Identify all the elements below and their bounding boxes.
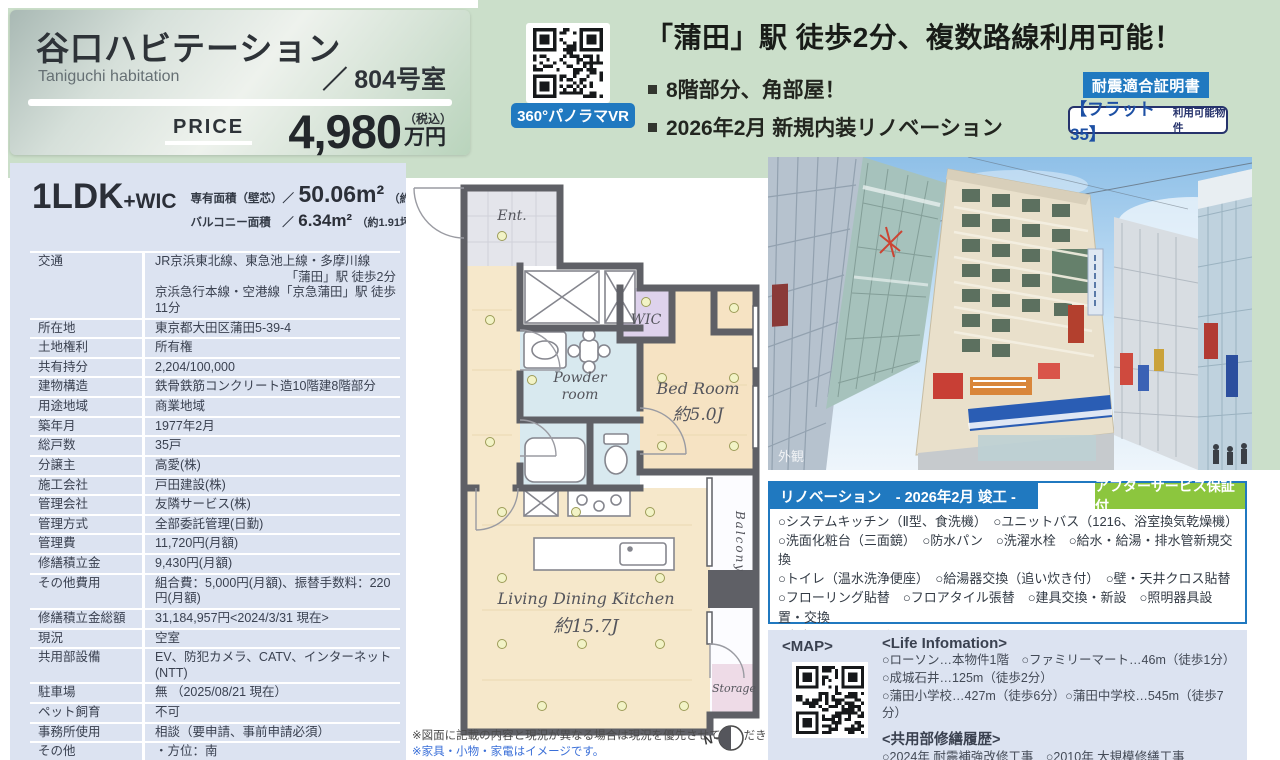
table-row: 建物構造鉄骨鉄筋コンクリート造10階建8階部分 — [30, 378, 400, 398]
label-entrance: Ent. — [496, 208, 526, 224]
table-row-value: 東京都大田区蒲田5-39-4 — [145, 320, 400, 338]
property-header: 谷口ハビテーション Taniguchi habitation ／ 804号室 P… — [10, 10, 470, 155]
table-row-label: ペット飼育 — [30, 704, 145, 722]
main-building — [916, 169, 1114, 470]
top-margin — [0, 0, 478, 8]
price-label: PRICE — [165, 116, 252, 145]
table-row: 土地権利所有権 — [30, 339, 400, 359]
table-row-label: 管理方式 — [30, 516, 145, 534]
layout-type: 1LDK — [32, 177, 123, 216]
table-row-value: 11,720円(月額) — [145, 535, 400, 553]
renovation-title: リノベーション - 2026年2月 竣工 - — [770, 483, 1038, 509]
table-row-value: 35戸 — [145, 437, 400, 455]
bullet-square-icon — [648, 85, 657, 94]
area-tsubo: （約15.14坪） — [389, 193, 406, 205]
svg-text:N: N — [703, 732, 714, 747]
list-item: ○蒲田小学校…427m（徒歩6分）○蒲田中学校…545m（徒歩7分） — [882, 688, 1242, 724]
table-row-label: その他 — [30, 743, 145, 760]
table-row-value: EV、防犯カメラ、CATV、インターネット(NTT) — [145, 649, 400, 682]
map-qr-code — [792, 662, 868, 738]
price-unit: 万円 — [404, 127, 446, 149]
table-row: 用途地域商業地域 — [30, 398, 400, 418]
vr-qr-code — [526, 23, 610, 103]
table-row: 現況空室 — [30, 630, 400, 650]
layout-suffix: +WIC — [123, 190, 176, 213]
table-row-value: JR京浜東北線、東急池上線・多摩川線「蒲田」駅 徒歩2分京浜急行本線・空港線「京… — [145, 253, 400, 318]
table-row: その他・方位：南・通学区域：蒲田小学校、蒲田中学校・公共水道、公共下水、都市ガス… — [30, 743, 400, 760]
table-row-value: 組合費：5,000円(月額)、振替手数料：220円(月額) — [145, 575, 400, 608]
table-row-label: 施工会社 — [30, 477, 145, 495]
table-row-label: 総戸数 — [30, 437, 145, 455]
flat35-badge-sub: 利用可能物件 — [1173, 105, 1226, 135]
table-row: 共用部設備EV、防犯カメラ、CATV、インターネット(NTT) — [30, 649, 400, 684]
vr-label: 360°パノラマVR — [511, 103, 635, 128]
label-wic: WIC — [631, 312, 662, 328]
table-row-label: その他費用 — [30, 575, 145, 608]
area-label: 専有面積（壁芯）／ — [191, 193, 295, 205]
label-bedroom: Bed Room — [655, 379, 739, 398]
bullet-square-icon — [648, 123, 657, 132]
photo-caption: 外観 — [778, 449, 804, 464]
right-green-strip — [1250, 0, 1280, 470]
renovation-items: ○システムキッチン（Ⅱ型、食洗機） ○ユニットバス（1216、浴室換気乾燥機）○… — [770, 509, 1245, 649]
table-row: その他費用組合費：5,000円(月額)、振替手数料：220円(月額) — [30, 575, 400, 610]
table-row-label: 築年月 — [30, 418, 145, 436]
map-label: <MAP> — [782, 638, 833, 655]
table-row-value: ・方位：南・通学区域：蒲田小学校、蒲田中学校・公共水道、公共下水、都市ガス、電力… — [145, 743, 400, 760]
list-item: ○ローソン…本物件1階 ○ファミリーマート…46m（徒歩1分） — [882, 652, 1242, 670]
table-row-value: 所有権 — [145, 339, 400, 357]
exterior-photo: 外観 — [768, 157, 1252, 470]
table-row-label: 用途地域 — [30, 398, 145, 416]
qr-code-icon — [796, 666, 864, 734]
table-row-value: 全部委託管理(日勤) — [145, 516, 400, 534]
life-information: <Life Infomation> ○ローソン…本物件1階 ○ファミリーマート…… — [882, 635, 1242, 760]
table-row-label: 現況 — [30, 630, 145, 648]
table-row: 分譲主高愛(株) — [30, 457, 400, 477]
table-row: 管理会社友隣サービス(株) — [30, 496, 400, 516]
list-item: ○2024年 耐震補強改修工事 ○2010年 大規模修繕工事 — [882, 749, 1242, 760]
table-row-label: 修繕積立金 — [30, 555, 145, 573]
property-title: 谷口ハビテーション — [36, 22, 341, 70]
table-row-label: 管理会社 — [30, 496, 145, 514]
table-row: 施工会社戸田建設(株) — [30, 477, 400, 497]
label-storage: Storage — [712, 682, 756, 695]
table-row-label: 共有持分 — [30, 359, 145, 377]
table-row-value: 2,204/100,000 — [145, 359, 400, 377]
table-row-value: 鉄骨鉄筋コンクリート造10階建8階部分 — [145, 378, 400, 396]
property-detail-panel: 1LDK+WIC 専有面積（壁芯）／ 50.06m² （約15.14坪） バルコ… — [10, 163, 406, 760]
after-service-tag: アフターサービス保証付 — [1095, 483, 1245, 509]
list-item: ○成城石井…125m（徒歩2分） — [882, 670, 1242, 688]
table-row: ペット飼育不可 — [30, 704, 400, 724]
label-bedroom-size: 約5.0J — [673, 405, 725, 425]
list-item: ○フローリング貼替 ○フロアタイル張替 ○建具交換・新設 ○照明器具設置・交換 — [778, 588, 1237, 626]
area-value: 50.06m² — [298, 181, 384, 207]
room-number: ／ 804号室 — [322, 60, 446, 96]
list-item: ○システムキッチン（Ⅱ型、食洗機） ○ユニットバス（1216、浴室換気乾燥機） — [778, 512, 1237, 531]
table-row-label: 管理費 — [30, 535, 145, 553]
life-information-title: <Life Infomation> — [882, 635, 1242, 652]
pedestrians — [1213, 443, 1247, 465]
table-row: 交通JR京浜東北線、東急池上線・多摩川線「蒲田」駅 徒歩2分京浜急行本線・空港線… — [30, 251, 400, 320]
layout-summary: 1LDK+WIC 専有面積（壁芯）／ 50.06m² （約15.14坪） バルコ… — [10, 163, 406, 231]
property-title-romaji: Taniguchi habitation — [38, 68, 179, 86]
label-powder-2: room — [562, 387, 599, 403]
price: 4,980 （税込） 万円 — [288, 108, 452, 155]
table-row-label: 建物構造 — [30, 378, 145, 396]
flat35-badge: 【フラット35】 利用可能物件 — [1068, 106, 1228, 134]
feature-bullet-2-text: 2026年2月 新規内装リノベーション — [666, 112, 1003, 142]
table-row-label: 修繕積立金総額 — [30, 610, 145, 628]
table-row-value: 不可 — [145, 704, 400, 722]
balcony-value: 6.34m² — [298, 211, 352, 230]
balcony-label: バルコニー面積 ／ — [191, 217, 294, 229]
repair-history-title: <共用部修繕履歴> — [882, 728, 1242, 749]
table-row-value: 戸田建設(株) — [145, 477, 400, 495]
table-row-label: 駐車場 — [30, 684, 145, 702]
info-table: 交通JR京浜東北線、東急池上線・多摩川線「蒲田」駅 徒歩2分京浜急行本線・空港線… — [30, 251, 400, 760]
table-row: 総戸数35戸 — [30, 437, 400, 457]
table-row-value: 空室 — [145, 630, 400, 648]
table-row: 共有持分2,204/100,000 — [30, 359, 400, 379]
table-row: 事務所使用相談（要申請、事前申請必須） — [30, 724, 400, 744]
price-tax-note: （税込） — [404, 110, 452, 127]
table-row-label: 交通 — [30, 253, 145, 318]
list-item: ○トイレ（温水洗浄便座） ○給湯器交換（追い炊き付） ○壁・天井クロス貼替 — [778, 569, 1237, 588]
table-row-label: 分譲主 — [30, 457, 145, 475]
table-row-value: 高愛(株) — [145, 457, 400, 475]
table-row-label: 事務所使用 — [30, 724, 145, 742]
catch-copy: 「蒲田」駅 徒歩2分、複数路線利用可能！ — [645, 16, 1245, 56]
flat35-badge-main: 【フラット35】 — [1070, 95, 1172, 145]
price-value: 4,980 — [288, 108, 401, 155]
table-row-value: 31,184,957円<2024/3/31 現在> — [145, 610, 400, 628]
feature-bullet-1-text: 8階部分、角部屋！ — [666, 74, 846, 104]
plan-disclaimer-2: ※家具・小物・家電はイメージです。 — [412, 743, 604, 759]
catch-copy-title: 「蒲田」駅 徒歩2分、複数路線利用可能！ — [645, 16, 1245, 56]
table-row-value: 相談（要申請、事前申請必須） — [145, 724, 400, 742]
table-row-value: 無 （2025/08/21 現在） — [145, 684, 400, 702]
renovation-box: リノベーション - 2026年2月 竣工 - アフターサービス保証付 ○システム… — [768, 481, 1247, 624]
table-row-value: 1977年2月 — [145, 418, 400, 436]
compass-icon: N — [700, 722, 750, 754]
repair-history-lines: ○2024年 耐震補強改修工事 ○2010年 大規模修繕工事 — [882, 749, 1242, 760]
list-item: ○洗面化粧台（三面鏡） ○防水パン ○洗濯水栓 ○給水・給湯・排水管新規交換 — [778, 531, 1237, 569]
table-row: 管理方式全部委託管理(日勤) — [30, 516, 400, 536]
floorplan: Ent. Powder room WIC Bed Room 約5.0J Livi… — [406, 180, 766, 742]
table-row: 築年月1977年2月 — [30, 418, 400, 438]
table-row-label: 所在地 — [30, 320, 145, 338]
table-row: 駐車場無 （2025/08/21 現在） — [30, 684, 400, 704]
table-row: 修繕積立金総額31,184,957円<2024/3/31 現在> — [30, 610, 400, 630]
table-row-value: 友隣サービス(株) — [145, 496, 400, 514]
map-life-panel: <MAP> <Life Infomation> ○ローソン…本物件1階 ○ファミ… — [768, 630, 1247, 760]
table-row-value: 9,430円(月額) — [145, 555, 400, 573]
table-row-label: 共用部設備 — [30, 649, 145, 682]
qr-code-icon — [531, 28, 605, 98]
balcony-tsubo: （約1.91坪） — [357, 217, 406, 229]
table-row: 管理費11,720円(月額) — [30, 535, 400, 555]
label-ldk-size: 約15.7J — [553, 616, 620, 637]
left-margin — [0, 0, 8, 760]
label-powder-1: Powder — [552, 370, 608, 386]
table-row-label: 土地権利 — [30, 339, 145, 357]
table-row: 修繕積立金9,430円(月額) — [30, 555, 400, 575]
table-row: 所在地東京都大田区蒲田5-39-4 — [30, 320, 400, 340]
life-information-lines: ○ローソン…本物件1階 ○ファミリーマート…46m（徒歩1分）○成城石井…125… — [882, 652, 1242, 723]
feature-bullet-2: 2026年2月 新規内装リノベーション — [648, 112, 1003, 142]
label-ldk: Living Dining Kitchen — [496, 589, 674, 608]
label-balcony: Balcony — [733, 510, 747, 573]
table-row-value: 商業地域 — [145, 398, 400, 416]
feature-bullet-1: 8階部分、角部屋！ — [648, 74, 846, 104]
